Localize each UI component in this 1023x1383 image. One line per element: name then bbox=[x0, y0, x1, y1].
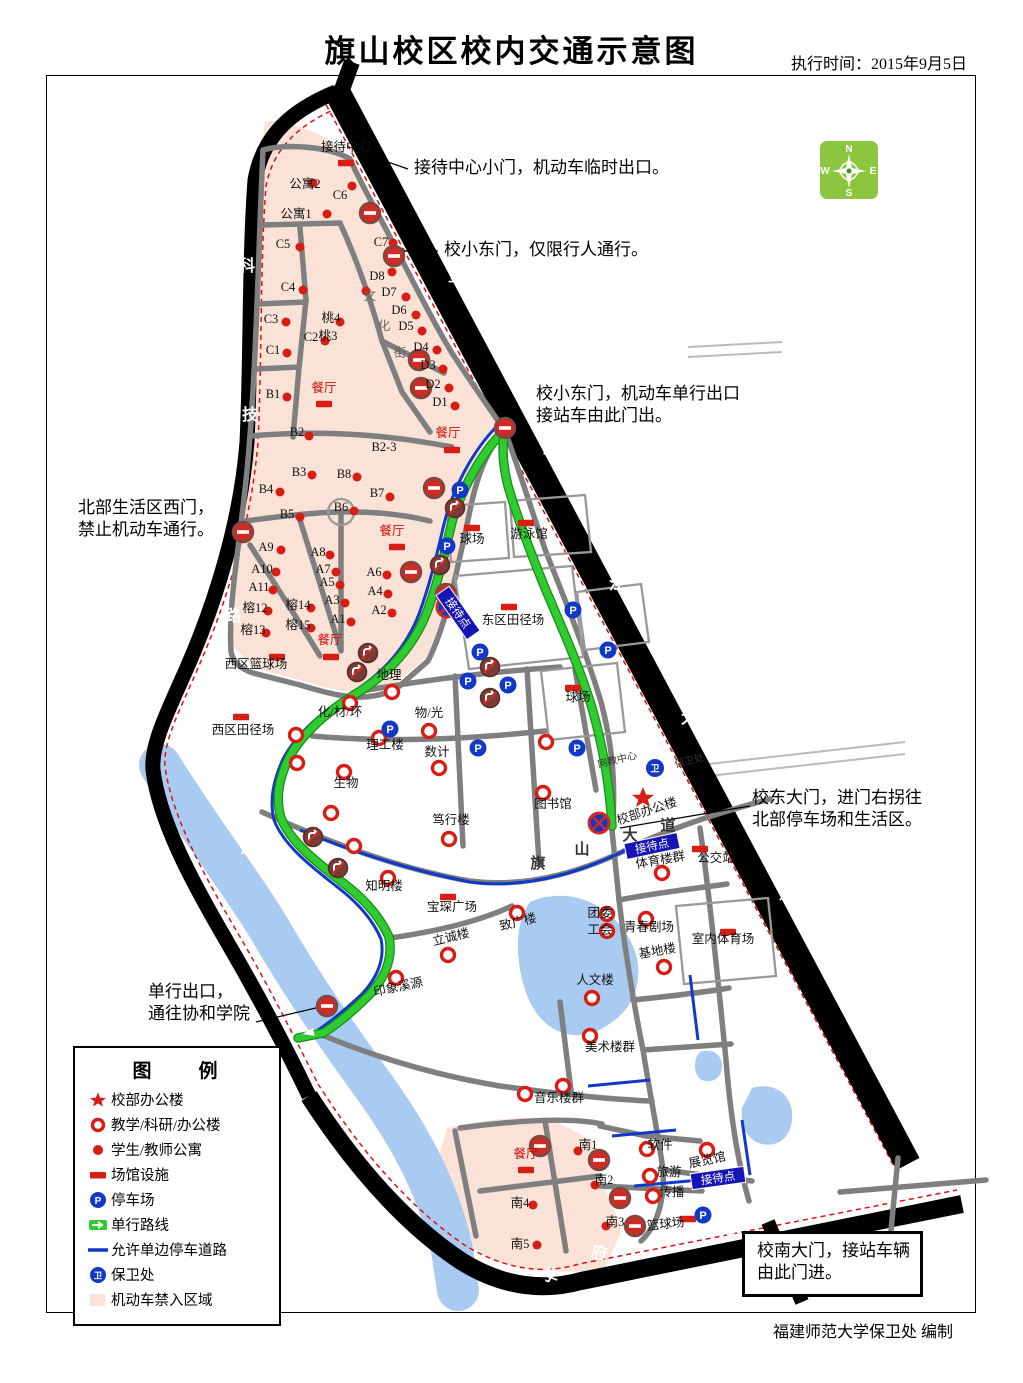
map-label: 道 bbox=[660, 816, 675, 834]
campus-road bbox=[256, 367, 299, 369]
apartment-dot bbox=[533, 1241, 542, 1250]
map-label: 桃4 bbox=[322, 310, 342, 325]
svg-text:P: P bbox=[474, 743, 481, 755]
map-label: 榕13 bbox=[240, 622, 265, 637]
campus-road bbox=[643, 1044, 731, 1050]
turn-restriction-sign bbox=[359, 644, 378, 663]
route-arrow-icon bbox=[353, 963, 367, 977]
venue-bar bbox=[233, 714, 249, 721]
map-label: 地理 bbox=[376, 668, 402, 682]
apartment-dot bbox=[439, 365, 448, 374]
shield-icon: 卫 bbox=[85, 1266, 111, 1284]
map-label: B1 bbox=[266, 387, 281, 401]
legend-item-donut: 教学/科研/办公楼 bbox=[85, 1114, 271, 1135]
apartment-dot bbox=[386, 493, 395, 502]
map-label: 江 bbox=[400, 1040, 415, 1058]
svg-text:P: P bbox=[95, 1196, 102, 1207]
zone-icon bbox=[85, 1291, 111, 1309]
svg-text:S: S bbox=[846, 188, 853, 199]
building-circle bbox=[423, 725, 436, 738]
map-label: 榕12 bbox=[242, 600, 267, 615]
map-label: 路 bbox=[817, 1192, 834, 1211]
map-label: B6 bbox=[334, 500, 349, 514]
map-label: 西区篮球场 bbox=[225, 656, 288, 671]
building-circle bbox=[644, 1170, 657, 1183]
map-label: D7 bbox=[381, 285, 396, 299]
map-label: 南4 bbox=[511, 1195, 531, 1210]
no-entry-sign bbox=[233, 522, 253, 542]
svg-text:P: P bbox=[504, 680, 511, 692]
map-label: 游泳馆 bbox=[510, 526, 548, 541]
annotation-small-east-gate-vehicle: 校小东门，机动车单行出口接站车由此门出。 bbox=[536, 383, 740, 427]
map-label: D5 bbox=[398, 319, 413, 333]
svg-text:P: P bbox=[573, 743, 580, 755]
svg-text:P: P bbox=[604, 645, 611, 657]
no-entry-sign bbox=[317, 996, 337, 1016]
map-label: 美术楼群 bbox=[585, 1039, 636, 1054]
parking-icon: P bbox=[569, 740, 586, 757]
map-label: 团委 bbox=[587, 906, 613, 920]
apartment-dot bbox=[283, 393, 292, 402]
apartment-dot bbox=[445, 384, 454, 393]
apartment-dot bbox=[383, 571, 392, 580]
map-label: 道 bbox=[779, 884, 795, 903]
legend-item-dot: 学生/教师公寓 bbox=[85, 1139, 271, 1160]
turn-restriction-sign bbox=[348, 663, 367, 682]
no-entry-sign bbox=[610, 1188, 630, 1208]
map-label: 公寓2 bbox=[289, 176, 320, 191]
svg-text:W: W bbox=[820, 166, 830, 177]
legend-item-oneway: 单行路线 bbox=[85, 1214, 271, 1235]
map-label: 科 bbox=[239, 256, 255, 275]
apartment-dot bbox=[451, 402, 460, 411]
turn-restriction-sign bbox=[329, 859, 348, 878]
bar-icon bbox=[85, 1166, 111, 1184]
map-label: 技 bbox=[242, 405, 259, 424]
venue-bar bbox=[444, 447, 460, 454]
map-label: 篮球场 bbox=[646, 1214, 685, 1233]
svg-text:P: P bbox=[443, 541, 450, 553]
apartment-dot bbox=[305, 432, 314, 441]
map-label: C7 bbox=[374, 235, 389, 249]
no-entry-sign bbox=[401, 562, 421, 582]
apartment-dot bbox=[433, 346, 442, 355]
map-label: 宝琛广场 bbox=[427, 900, 477, 914]
map-label: 软件 bbox=[647, 1138, 672, 1152]
map-label: C2 bbox=[304, 330, 319, 344]
outside-road bbox=[700, 754, 905, 777]
legend-item-label: 校部办公楼 bbox=[111, 1089, 184, 1110]
map-label: C6 bbox=[333, 188, 348, 202]
map-label: 餐厅 bbox=[513, 1146, 538, 1161]
map-label: D3 bbox=[420, 358, 435, 372]
map-label: A5 bbox=[319, 575, 334, 589]
building-circle bbox=[386, 686, 399, 699]
map-label: 音乐楼群 bbox=[534, 1090, 585, 1105]
parking-icon: P bbox=[500, 677, 517, 694]
apartment-dot bbox=[384, 590, 393, 599]
parking-icon: P bbox=[470, 740, 487, 757]
building-circle bbox=[586, 992, 599, 1005]
map-label: 街 bbox=[394, 346, 407, 360]
apartment-dot bbox=[282, 318, 291, 327]
apartment-dot bbox=[326, 551, 335, 560]
map-label: A6 bbox=[366, 565, 381, 579]
map-label: D8 bbox=[369, 269, 384, 283]
turn-restriction-sign bbox=[431, 556, 450, 575]
map-label: 文 bbox=[364, 288, 377, 303]
map-label: 桃3 bbox=[319, 328, 338, 343]
legend-item-shield: 卫保卫处 bbox=[85, 1264, 271, 1285]
apartment-dot bbox=[296, 513, 305, 522]
map-label: B7 bbox=[370, 486, 385, 500]
map-label: D2 bbox=[425, 377, 440, 391]
parking-allowed-road bbox=[690, 975, 698, 1040]
map-label: 旅游 bbox=[656, 1165, 682, 1179]
no-entry-sign bbox=[495, 418, 515, 438]
legend-item-label: 机动车禁入区域 bbox=[111, 1289, 213, 1310]
apartment-dot bbox=[347, 618, 356, 627]
star-icon bbox=[85, 1091, 111, 1109]
map-label: 江 bbox=[609, 575, 625, 593]
apartment-dot bbox=[529, 1201, 538, 1210]
map-label: 南3 bbox=[606, 1214, 625, 1229]
map-label: 龙 bbox=[542, 438, 559, 457]
map-label: 知明楼 bbox=[365, 878, 403, 893]
svg-text:N: N bbox=[845, 144, 852, 155]
map-label: 理工楼 bbox=[366, 737, 404, 752]
annotation-reception-gate: 接待中心小门，机动车临时出口。 bbox=[414, 157, 669, 179]
map-label: 工会 bbox=[587, 923, 613, 937]
building-circle bbox=[540, 736, 553, 749]
parking-icon: P bbox=[565, 602, 582, 619]
map-label: 物/光 bbox=[415, 706, 443, 720]
apartment-dot bbox=[341, 599, 350, 608]
map-label: A7 bbox=[315, 562, 330, 576]
map-label: 笃行楼 bbox=[432, 812, 470, 827]
oneway-icon bbox=[85, 1216, 111, 1234]
map-label: 化 bbox=[378, 319, 391, 333]
legend-item-label: 教学/科研/办公楼 bbox=[111, 1114, 221, 1135]
campus-road bbox=[263, 223, 340, 225]
turn-restriction-sign bbox=[481, 689, 500, 708]
svg-text:P: P bbox=[456, 485, 463, 497]
venue-bar bbox=[464, 525, 480, 532]
apartment-dot bbox=[336, 581, 345, 590]
campus-road bbox=[840, 1180, 986, 1192]
svg-text:P: P bbox=[464, 676, 471, 688]
map-label: 餐厅 bbox=[435, 425, 460, 440]
building-circle bbox=[290, 729, 303, 742]
map-label: B2-3 bbox=[372, 440, 397, 454]
venue-bar bbox=[501, 604, 517, 611]
map-label: 青春剧场 bbox=[624, 920, 674, 934]
no-entry-sign bbox=[384, 246, 404, 266]
map-label: B5 bbox=[280, 507, 295, 521]
venue-bar bbox=[518, 1167, 534, 1174]
map-label: B3 bbox=[292, 465, 307, 479]
parking-icon: P bbox=[85, 1191, 111, 1209]
apartment-dot bbox=[350, 507, 359, 516]
legend-item-label: 保卫处 bbox=[111, 1264, 155, 1285]
turn-restriction-sign bbox=[481, 658, 500, 677]
east-pond bbox=[742, 1086, 793, 1144]
route-arrow-icon bbox=[582, 774, 591, 787]
map-label: C4 bbox=[281, 280, 296, 294]
building-circle bbox=[658, 961, 671, 974]
apartment-dot bbox=[388, 609, 397, 618]
parking-icon: P bbox=[460, 673, 477, 690]
apartment-dot bbox=[418, 327, 427, 336]
svg-text:P: P bbox=[386, 724, 393, 736]
small-pond bbox=[695, 1051, 722, 1081]
annotation-south-main-gate: 校南大门，接站车辆由此门进。 bbox=[742, 1231, 923, 1297]
parking-icon: P bbox=[600, 642, 617, 659]
map-label: 球场 bbox=[459, 532, 484, 546]
apartment-dot bbox=[272, 568, 281, 577]
map-label: 接待中心 bbox=[321, 139, 372, 154]
map-label: 南2 bbox=[595, 1172, 614, 1187]
building-circle bbox=[348, 840, 361, 853]
turn-restriction-sign bbox=[446, 499, 465, 518]
parking-icon: P bbox=[382, 721, 399, 738]
apartment-dot bbox=[402, 293, 411, 302]
apartment-dot bbox=[388, 268, 397, 277]
map-label: C1 bbox=[266, 343, 281, 357]
map-label: 乌 bbox=[448, 269, 464, 288]
map-label: 南 bbox=[720, 1219, 736, 1238]
outside-road bbox=[688, 342, 782, 347]
map-label: 东区田径场 bbox=[482, 613, 545, 627]
legend-item-label: 停车场 bbox=[111, 1189, 155, 1210]
map-label: 溪 bbox=[240, 839, 256, 857]
map-label: C3 bbox=[264, 312, 279, 326]
apartment-dot bbox=[308, 471, 317, 480]
legend-items: 校部办公楼教学/科研/办公楼学生/教师公寓场馆设施P停车场单行路线允许单边停车道… bbox=[85, 1089, 271, 1310]
security-shield-icon: 卫 bbox=[646, 759, 664, 777]
venue-bar bbox=[316, 401, 332, 408]
legend-item-parking: P停车场 bbox=[85, 1189, 271, 1210]
annotation-small-east-gate-ped: 校小东门，仅限行人通行。 bbox=[444, 239, 648, 261]
parking-icon: P bbox=[439, 538, 456, 555]
no-entry-sign bbox=[589, 1150, 609, 1170]
turn-restriction-sign bbox=[304, 828, 323, 847]
map-label: A1 bbox=[330, 612, 345, 626]
blueline-icon bbox=[85, 1241, 111, 1259]
legend-item-star: 校部办公楼 bbox=[85, 1089, 271, 1110]
map-label: 化/材/环 bbox=[318, 705, 362, 719]
svg-text:卫: 卫 bbox=[650, 764, 659, 774]
map-label: D4 bbox=[413, 340, 429, 354]
parking-icon: P bbox=[695, 1207, 712, 1224]
map-label: 室内体育场 bbox=[692, 931, 755, 946]
map-label: 图书馆 bbox=[534, 796, 572, 811]
map-label: 餐厅 bbox=[317, 632, 342, 647]
map-label: 大 bbox=[622, 826, 637, 844]
map-label: 南1 bbox=[579, 1137, 598, 1152]
map-label: A3 bbox=[324, 593, 339, 607]
map-label: A2 bbox=[371, 603, 386, 617]
legend-item-zone: 机动车禁入区域 bbox=[85, 1289, 271, 1310]
svg-text:P: P bbox=[569, 605, 576, 617]
building-circle bbox=[443, 833, 456, 846]
building-circle bbox=[325, 807, 338, 820]
legend: 图 例 校部办公楼教学/科研/办公楼学生/教师公寓场馆设施P停车场单行路线允许单… bbox=[73, 1046, 281, 1326]
legend-item-label: 单行路线 bbox=[111, 1214, 169, 1235]
apartment-dot bbox=[276, 488, 285, 497]
dot-icon bbox=[85, 1141, 111, 1159]
apartment-dot bbox=[277, 546, 286, 555]
legend-item-label: 允许单边停车道路 bbox=[111, 1239, 227, 1260]
svg-text:P: P bbox=[699, 1210, 706, 1222]
legend-title: 图 例 bbox=[93, 1056, 271, 1083]
reception-point-badge: 接待点 bbox=[690, 1166, 746, 1189]
map-label: 西区田径场 bbox=[212, 723, 275, 737]
svg-text:P: P bbox=[476, 647, 483, 659]
map-label: 榕15 bbox=[285, 617, 310, 632]
outside-road bbox=[688, 352, 782, 357]
legend-item-label: 学生/教师公寓 bbox=[111, 1139, 202, 1160]
apartment-dot bbox=[296, 243, 305, 252]
campus-road bbox=[258, 302, 306, 304]
apartment-dot bbox=[323, 210, 332, 219]
building-circle bbox=[647, 1190, 660, 1203]
no-stopping-sign bbox=[589, 813, 609, 833]
map-label: 基地楼 bbox=[637, 940, 677, 961]
building-circle bbox=[656, 867, 669, 880]
map-label: 数计 bbox=[424, 744, 449, 759]
apartment-dot bbox=[353, 473, 362, 482]
no-entry-sign bbox=[625, 1216, 645, 1236]
map-label: 生物 bbox=[333, 776, 358, 790]
credit-line: 福建师范大学保卫处 编制 bbox=[773, 1318, 953, 1342]
apartment-dot bbox=[299, 286, 308, 295]
venue-bar bbox=[323, 654, 339, 661]
map-label: 源 bbox=[323, 927, 338, 945]
boundary-road bbox=[340, 62, 352, 95]
building-circle bbox=[519, 1088, 532, 1101]
map-label: 旗 bbox=[530, 854, 545, 872]
map-label: 公寓1 bbox=[280, 206, 311, 221]
map-label: 公交站 bbox=[697, 850, 735, 865]
map-label: 山 bbox=[574, 841, 589, 858]
legend-item-bar: 场馆设施 bbox=[85, 1164, 271, 1185]
annotation-oneway-exit: 单行出口，通往协和学院 bbox=[148, 981, 250, 1025]
legend-item-label: 场馆设施 bbox=[111, 1164, 169, 1185]
map-label: 路 bbox=[225, 606, 242, 625]
venue-bar bbox=[389, 544, 405, 551]
map-label: B8 bbox=[337, 467, 352, 481]
outside-road bbox=[700, 742, 905, 765]
map-label: 榕14 bbox=[285, 597, 311, 612]
building-circle bbox=[442, 949, 455, 962]
map-label: A11 bbox=[248, 580, 269, 594]
campus-traffic-map-page: 旗山校区校内交通示意图 执行时间：2015年9月5日 PPPPPPPPPPP卫接… bbox=[0, 0, 1023, 1383]
map-label: A9 bbox=[258, 540, 273, 554]
svg-text:E: E bbox=[870, 166, 877, 177]
compass-rose-icon: N S W E bbox=[820, 141, 878, 199]
apartment-dot bbox=[348, 182, 357, 191]
map-label: A8 bbox=[310, 545, 325, 559]
map-label: A4 bbox=[367, 584, 383, 598]
venue-bar bbox=[338, 160, 354, 167]
map-label: 餐厅 bbox=[379, 523, 404, 538]
svg-text:卫: 卫 bbox=[94, 1270, 103, 1280]
apartment-dot bbox=[269, 586, 278, 595]
legend-item-blueline: 允许单边停车道路 bbox=[85, 1239, 271, 1260]
no-entry-sign bbox=[424, 478, 444, 498]
map-label: D6 bbox=[391, 303, 406, 317]
map-label: 球场 bbox=[565, 690, 590, 704]
building-circle bbox=[433, 762, 446, 775]
building-circle bbox=[291, 757, 304, 770]
annotation-east-main-gate: 校东大门，进门右拐往北部停车场和生活区。 bbox=[752, 787, 922, 831]
map-label: 传播 bbox=[659, 1184, 685, 1199]
map-label: B2 bbox=[290, 425, 305, 439]
map-label: A10 bbox=[251, 562, 273, 576]
venue-bar bbox=[518, 520, 534, 527]
map-label: D1 bbox=[432, 395, 447, 409]
apartment-dot bbox=[283, 349, 292, 358]
map-label: 人文楼 bbox=[576, 972, 614, 987]
map-label: 餐厅 bbox=[311, 380, 336, 395]
parking-allowed-road bbox=[588, 1080, 650, 1086]
map-label: 南5 bbox=[511, 1236, 530, 1251]
annotation-north-west-gate: 北部生活区西门，禁止机动车通行。 bbox=[78, 497, 214, 541]
map-label: 大 bbox=[681, 708, 697, 727]
campus-road bbox=[527, 669, 539, 863]
map-label: C5 bbox=[276, 237, 291, 251]
campus-road bbox=[633, 988, 729, 1000]
map-label: B4 bbox=[259, 482, 274, 496]
donut-icon bbox=[85, 1116, 111, 1134]
parking-icon: P bbox=[452, 482, 469, 499]
no-entry-sign bbox=[360, 203, 380, 223]
